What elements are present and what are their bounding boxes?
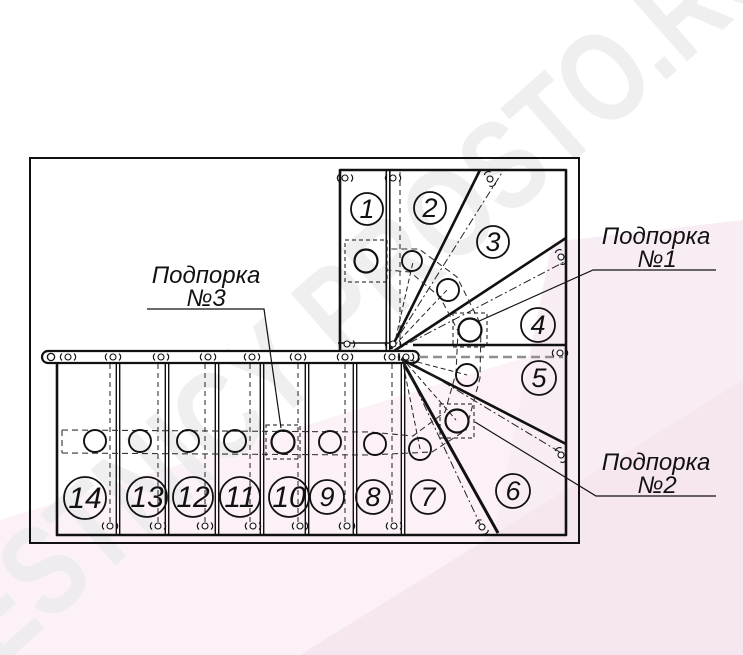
- step-number-6: 6: [505, 476, 521, 506]
- support-post-1: [453, 313, 487, 347]
- step-number-12: 12: [176, 481, 210, 514]
- step-number-4: 4: [530, 310, 545, 340]
- step-number-14: 14: [68, 482, 101, 515]
- step-number-11: 11: [224, 481, 255, 514]
- stair-plan-drawing: LESTNICY PROSTO.RU: [0, 0, 743, 655]
- step-number-7: 7: [420, 482, 436, 512]
- support3-label-line2: №3: [186, 285, 226, 312]
- step-number-3: 3: [485, 227, 500, 257]
- stair-plan-page: LESTNICY PROSTO.RU: [0, 0, 743, 655]
- step-number-2: 2: [421, 193, 437, 223]
- step-number-5: 5: [531, 363, 547, 393]
- support2-label-line2: №2: [637, 472, 676, 499]
- handrail: [42, 351, 419, 363]
- step-number-9: 9: [319, 482, 334, 512]
- step-number-10: 10: [272, 481, 306, 514]
- step-number-1: 1: [359, 194, 374, 224]
- support1-label-line2: №1: [637, 246, 676, 273]
- step-number-13: 13: [130, 481, 164, 514]
- step-number-8: 8: [365, 482, 380, 512]
